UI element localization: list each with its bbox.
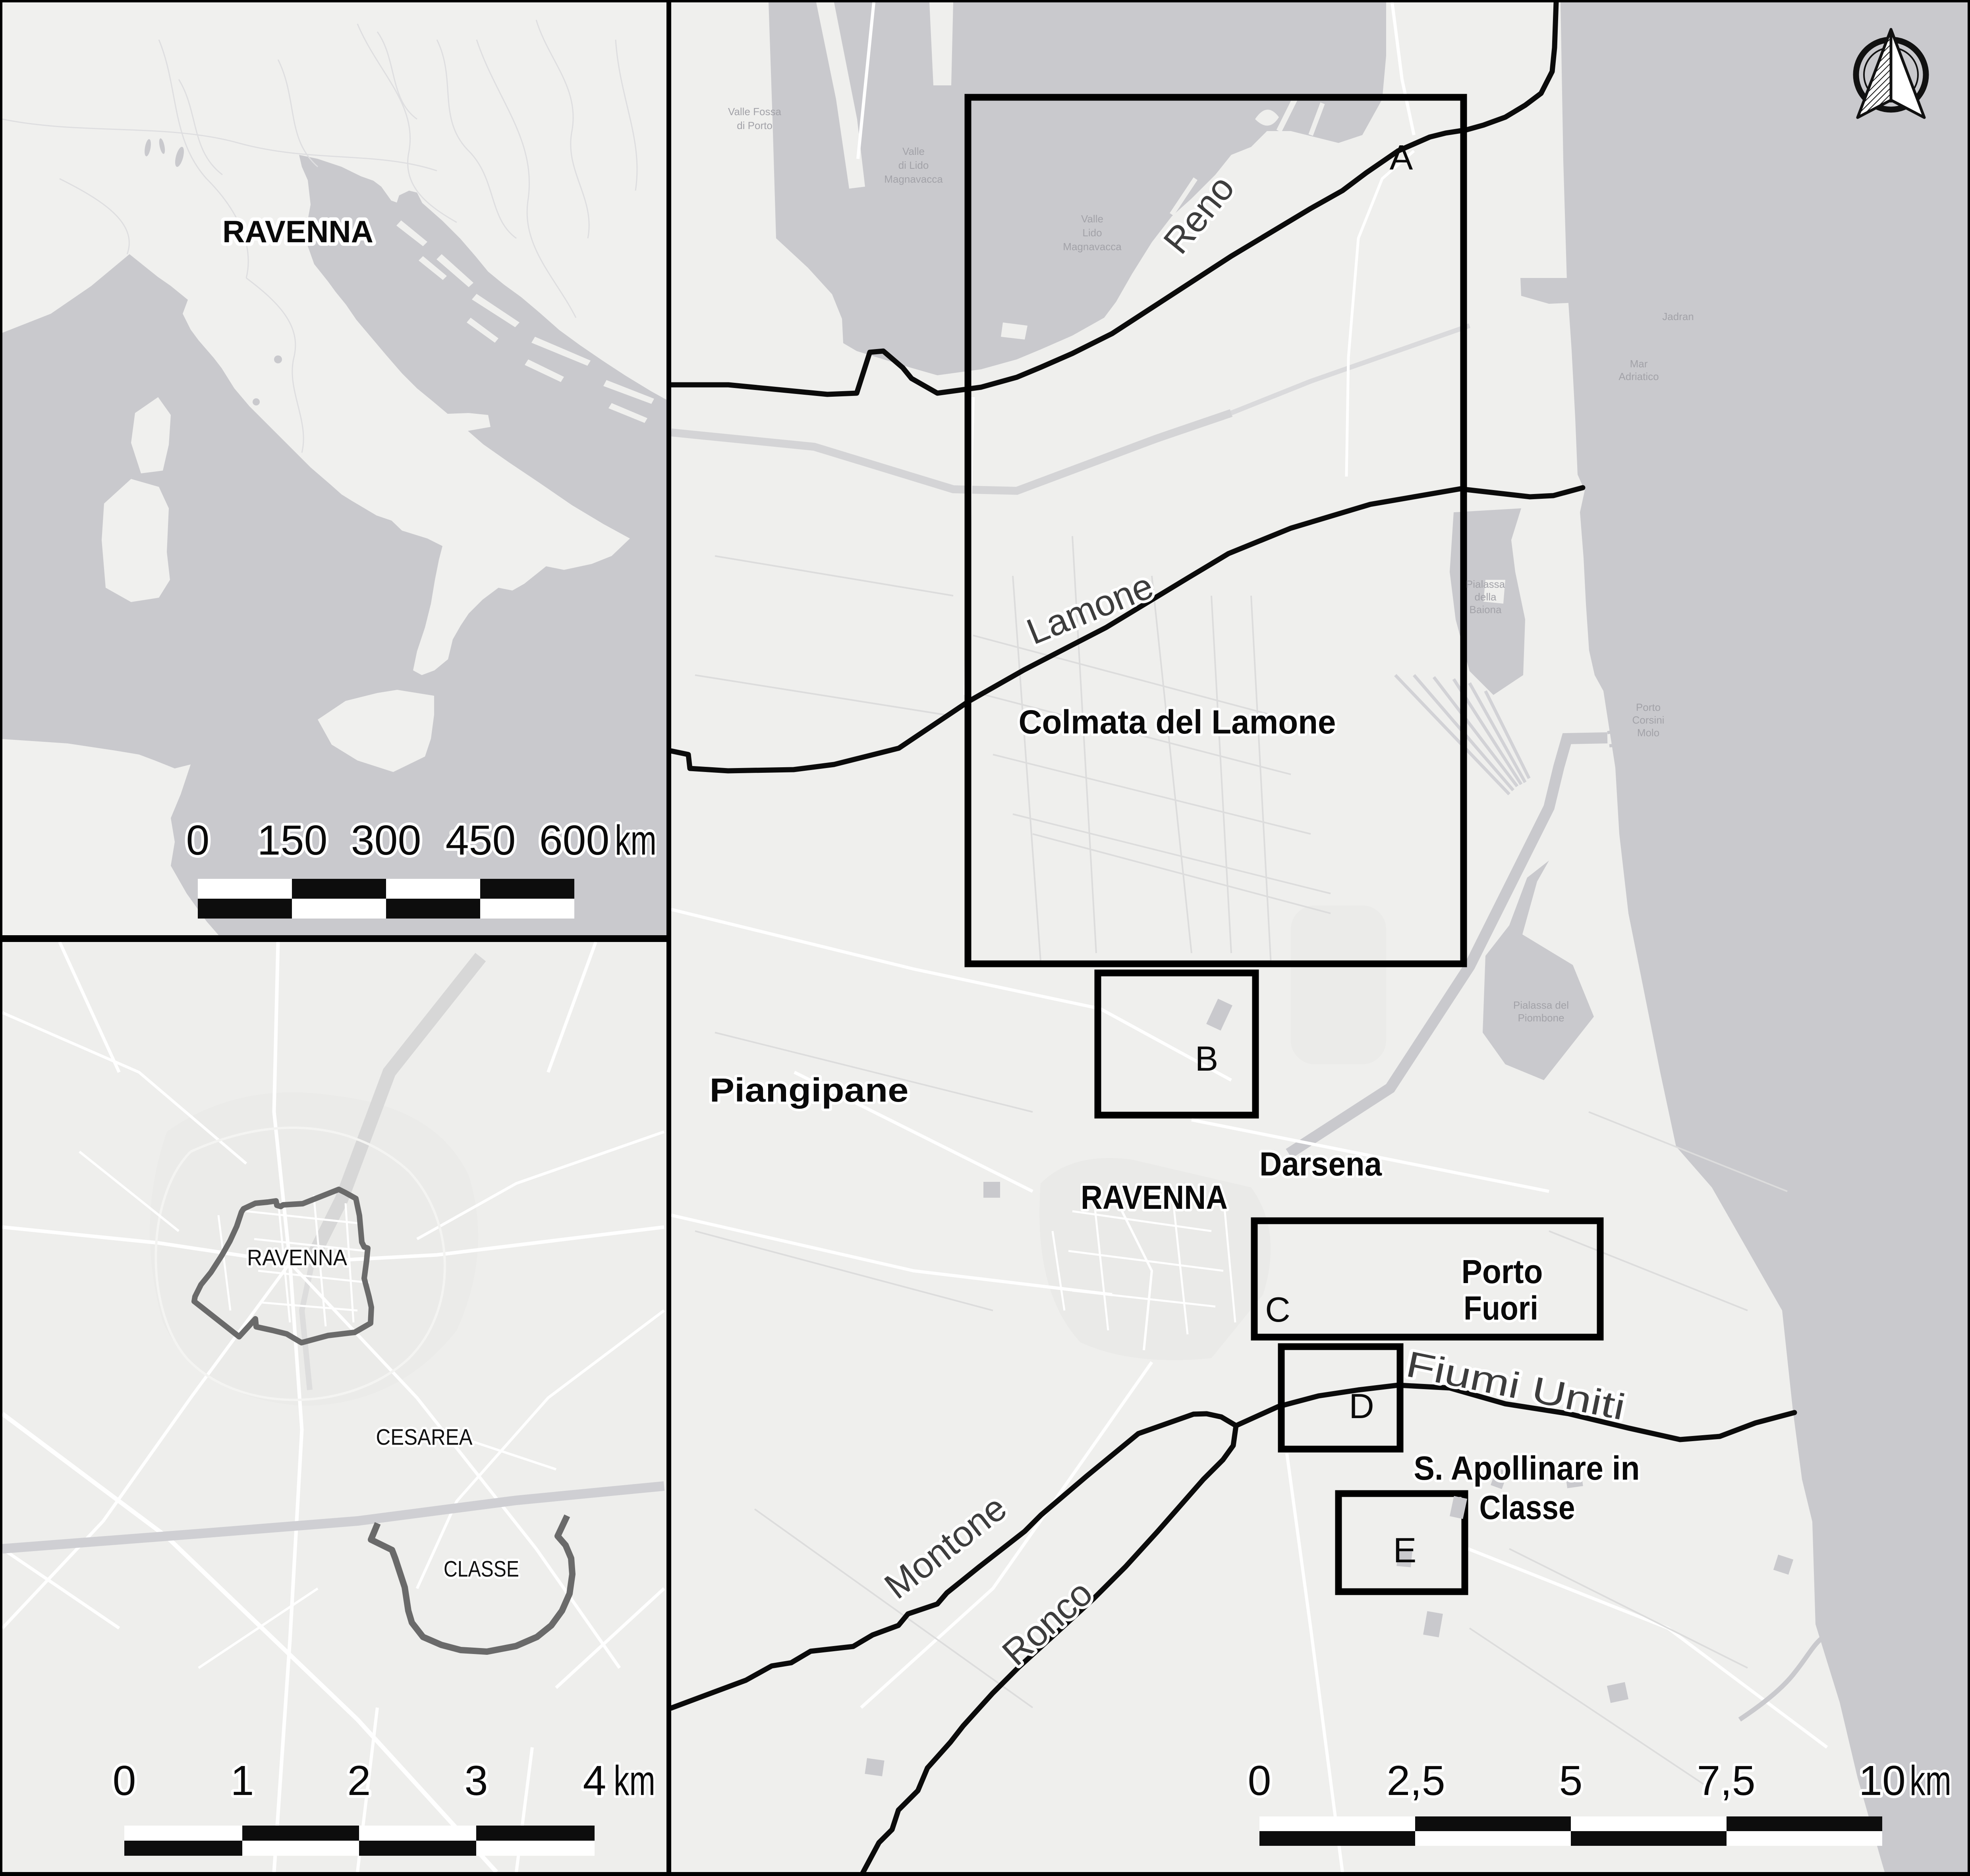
svg-text:4: 4 <box>583 1757 606 1804</box>
svg-text:E: E <box>1393 1531 1417 1570</box>
svg-text:di Lido: di Lido <box>898 159 929 171</box>
svg-text:Mar: Mar <box>1630 358 1648 370</box>
svg-text:S. Apollinare in: S. Apollinare in <box>1414 1449 1640 1487</box>
svg-text:0: 0 <box>186 817 210 864</box>
svg-text:Valle: Valle <box>902 145 925 157</box>
svg-text:Pialassa: Pialassa <box>1466 578 1505 590</box>
svg-text:Piangipane: Piangipane <box>710 1071 909 1109</box>
svg-text:CLASSE: CLASSE <box>444 1556 519 1582</box>
svg-text:Baiona: Baiona <box>1470 604 1502 616</box>
svg-text:RAVENNA: RAVENNA <box>222 214 373 249</box>
svg-text:km: km <box>1910 1757 1951 1804</box>
svg-text:2,5: 2,5 <box>1387 1757 1445 1804</box>
svg-text:Classe: Classe <box>1479 1489 1575 1526</box>
svg-text:della: della <box>1475 591 1497 603</box>
svg-text:300: 300 <box>351 817 421 864</box>
svg-text:Colmata del Lamone: Colmata del Lamone <box>1019 703 1336 741</box>
svg-text:2: 2 <box>348 1757 371 1804</box>
svg-text:0: 0 <box>113 1757 136 1804</box>
svg-text:RAVENNA: RAVENNA <box>247 1245 347 1270</box>
svg-text:km: km <box>615 817 657 864</box>
svg-text:3: 3 <box>465 1757 488 1804</box>
svg-text:C: C <box>1265 1290 1290 1329</box>
svg-text:10: 10 <box>1859 1757 1906 1804</box>
svg-text:Adriatico: Adriatico <box>1618 371 1659 382</box>
svg-text:1: 1 <box>231 1757 254 1804</box>
svg-text:Valle: Valle <box>1081 213 1103 225</box>
svg-text:Corsini: Corsini <box>1632 714 1665 726</box>
svg-text:Jadran: Jadran <box>1662 311 1694 322</box>
svg-text:Valle Fossa: Valle Fossa <box>728 106 781 118</box>
svg-text:CESAREA: CESAREA <box>376 1424 473 1450</box>
svg-text:600: 600 <box>539 817 610 864</box>
svg-text:150: 150 <box>257 817 328 864</box>
svg-text:D: D <box>1349 1386 1374 1426</box>
svg-text:di Porto: di Porto <box>737 120 773 131</box>
svg-text:Porto: Porto <box>1462 1253 1543 1290</box>
svg-text:Piombone: Piombone <box>1518 1012 1564 1024</box>
svg-text:Magnavacca: Magnavacca <box>884 173 943 185</box>
svg-text:A: A <box>1390 138 1413 177</box>
svg-text:Magnavacca: Magnavacca <box>1063 241 1122 253</box>
svg-text:0: 0 <box>1248 1757 1271 1804</box>
svg-text:Darsena: Darsena <box>1259 1145 1382 1183</box>
svg-text:Pialassa del: Pialassa del <box>1513 999 1569 1011</box>
svg-text:B: B <box>1195 1039 1219 1078</box>
svg-text:450: 450 <box>446 817 516 864</box>
svg-text:Fuori: Fuori <box>1464 1289 1538 1327</box>
svg-text:RAVENNA: RAVENNA <box>1081 1179 1228 1216</box>
svg-text:Molo: Molo <box>1637 727 1659 739</box>
svg-text:Lido: Lido <box>1082 227 1102 239</box>
svg-text:Porto: Porto <box>1636 701 1661 713</box>
svg-text:7,5: 7,5 <box>1697 1757 1755 1804</box>
svg-text:km: km <box>614 1757 655 1804</box>
svg-text:5: 5 <box>1559 1757 1583 1804</box>
